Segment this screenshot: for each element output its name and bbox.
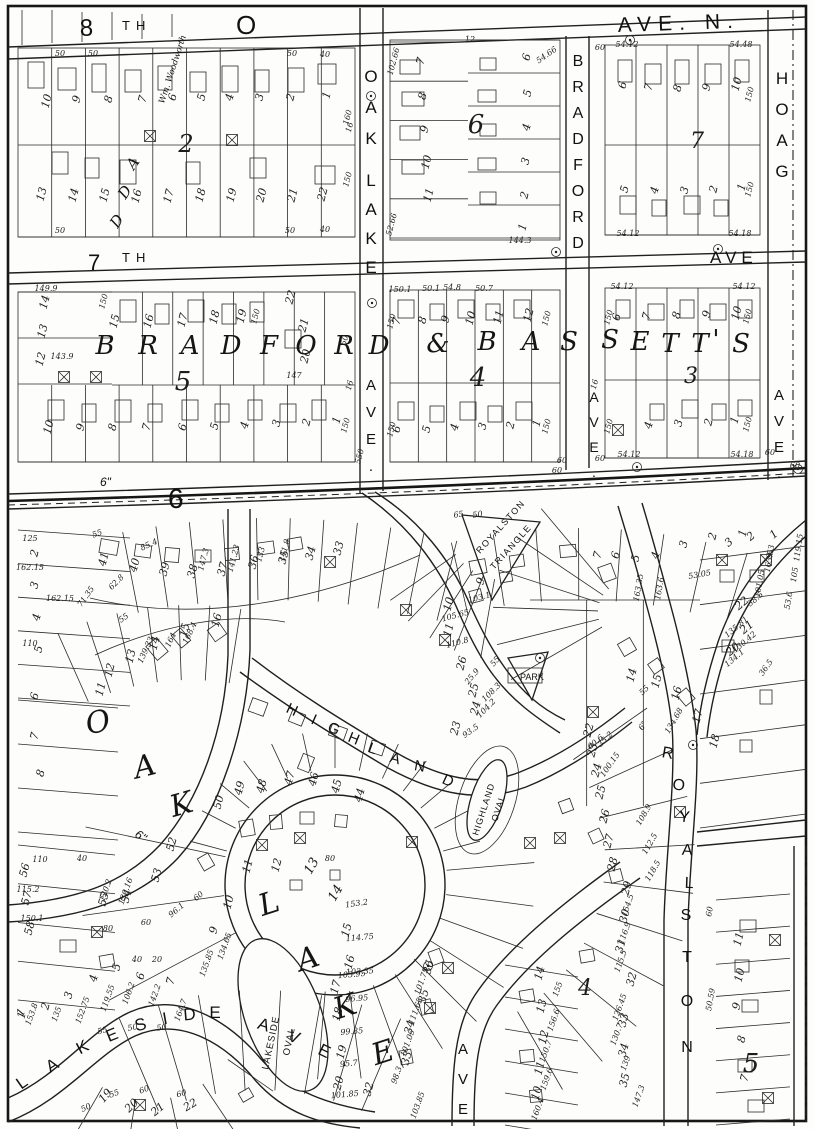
lot-number: 15 xyxy=(97,187,113,204)
bradford-bassetts-letter: F xyxy=(259,331,279,361)
dimension-label: 134.68 xyxy=(663,706,685,735)
label-6in-west: 6" xyxy=(132,827,150,845)
bradford-bassetts-letter: A xyxy=(520,327,541,357)
lakeside-ave-name: L xyxy=(13,1072,32,1093)
lot-line xyxy=(446,895,533,906)
lot-line xyxy=(616,529,621,601)
bradford-bassetts-letter: S xyxy=(601,325,619,355)
lot-number: 10 xyxy=(729,76,745,93)
building-footprint xyxy=(250,158,266,178)
lot-number: 11 xyxy=(421,187,437,204)
dimension-label: 60 xyxy=(595,43,605,52)
lot-number: 11 xyxy=(441,622,457,639)
building-footprint xyxy=(620,196,636,214)
dimension-label: 156.6 xyxy=(546,1008,562,1033)
building-footprint xyxy=(48,400,64,420)
dimension-label: 153.2 xyxy=(345,897,369,909)
dimension-label: 162.15 xyxy=(46,594,74,603)
dimension-label: 142.2 xyxy=(147,983,163,1008)
lot-number: 16 xyxy=(209,612,225,629)
dimension-label: 163.35 xyxy=(632,573,646,602)
lot-number: 10 xyxy=(221,894,237,911)
lot-number: 4 xyxy=(86,973,101,984)
dimension-label: 50 xyxy=(127,1022,139,1033)
oak-lake-name: O xyxy=(364,67,377,86)
street-bradford-ave xyxy=(566,36,589,470)
building-footprint xyxy=(92,64,106,92)
lot-line xyxy=(493,607,598,611)
dimension-label: 53.6 xyxy=(783,591,795,610)
royalston-name: S xyxy=(681,907,692,924)
lot-line xyxy=(443,841,480,851)
dimension-label: 102.66 xyxy=(386,47,402,76)
lot-number: 2 xyxy=(706,184,721,195)
lot-line xyxy=(597,913,683,940)
lot-number: 6 xyxy=(615,80,629,90)
dimension-label: 54.12 xyxy=(617,229,640,238)
street-6th-ave xyxy=(8,461,806,509)
lot-number: 2 xyxy=(705,531,720,542)
building-footprint xyxy=(480,58,496,70)
building-footprint xyxy=(297,753,314,772)
lot-number: 6 xyxy=(27,691,41,701)
lot-line xyxy=(179,605,182,680)
lot-number: 33 xyxy=(331,540,347,557)
street-label-7th-suffix: TH xyxy=(122,250,151,265)
building-footprint xyxy=(148,404,162,422)
building-footprint xyxy=(480,192,496,204)
oak-lake-ave-name: V xyxy=(366,404,376,421)
lot-number: 5 xyxy=(207,421,221,431)
lettered-street-names: OAKLAKEAVE.BRADFORDAVE.HOAGAVE.AVEHIGHLA… xyxy=(13,53,789,1118)
dimension-label: 16 xyxy=(344,121,355,133)
lot-number: 6 xyxy=(175,422,189,432)
dimension-label: 54.66 xyxy=(535,45,559,66)
dimension-label: 55 xyxy=(488,655,501,669)
street-east-cross xyxy=(697,820,806,846)
oak-lake-addition-letter: K xyxy=(165,785,199,826)
dimension-label: 54.48 xyxy=(730,40,753,49)
building-footprint xyxy=(125,70,141,92)
dimension-label: 80 xyxy=(325,854,335,863)
dimension-label: 105 xyxy=(789,566,800,582)
building-footprint xyxy=(290,880,302,890)
dimension-label: 40 xyxy=(76,854,87,863)
lot-line xyxy=(190,841,227,851)
lot-number: 18 xyxy=(193,187,209,204)
lot-number: 10 xyxy=(441,596,457,613)
hoag-ave-name: . xyxy=(777,465,781,482)
building-footprint xyxy=(248,400,262,420)
building-footprint xyxy=(330,870,340,880)
building-footprint xyxy=(430,406,444,422)
lot-number: 14 xyxy=(325,882,346,904)
dimension-label: 52.66 xyxy=(384,212,399,236)
dimension-label: 85.4 xyxy=(139,537,159,553)
dimension-label: 60 xyxy=(790,461,800,470)
building-footprint xyxy=(248,698,268,717)
lot-number: 2 xyxy=(38,1001,53,1012)
dimension-label: 125 xyxy=(22,534,37,543)
lot-line xyxy=(429,940,503,987)
lot-number: 7 xyxy=(139,422,153,432)
bradford-bassetts-letter: S xyxy=(560,327,578,357)
dimension-label: 106.2 xyxy=(121,981,137,1006)
dimension-label: 55 xyxy=(91,528,104,540)
lot-number: 21 xyxy=(284,187,300,205)
lot-line xyxy=(604,882,693,893)
crossed-box-icon xyxy=(613,425,624,436)
lot-number: 3 xyxy=(61,990,75,1000)
dimension-label: 103.1 xyxy=(467,590,491,605)
lot-line xyxy=(700,546,806,560)
building-footprint xyxy=(714,200,728,216)
lot-number: 2 xyxy=(283,92,298,103)
lot-number: 10 xyxy=(41,419,57,436)
lot-line xyxy=(434,811,468,829)
building-footprint xyxy=(682,400,698,418)
bradford-name: R xyxy=(572,209,584,226)
building-footprint xyxy=(720,570,734,582)
lot-number: 8 xyxy=(415,315,429,325)
lot-number: 4 xyxy=(237,420,252,431)
oak-lake-addition-letter: A xyxy=(127,747,159,787)
lot-number: 34 xyxy=(303,545,319,562)
bradford-bassetts-letter: D xyxy=(368,331,390,361)
lot-number: 17 xyxy=(161,188,177,205)
lot-line xyxy=(189,522,198,604)
building-footprint xyxy=(334,814,347,827)
lot-number: 9 xyxy=(699,82,713,92)
dimension-label: 60 xyxy=(557,456,567,465)
dimension-label: 99.85 xyxy=(340,1026,364,1037)
dimension-label: 150 xyxy=(602,309,615,326)
dimension-label: 150.1 xyxy=(21,914,44,923)
building-footprint xyxy=(516,402,532,420)
dimension-label: 53.05 xyxy=(688,568,712,581)
dimension-label: 115.2 xyxy=(17,885,40,894)
dimension-label: 150 xyxy=(385,421,398,438)
crossed-box-icon xyxy=(588,707,599,718)
oak-lake-ave-name: A xyxy=(366,377,376,394)
dimension-label: 50.7 xyxy=(475,284,494,293)
lot-number: 21 xyxy=(147,1100,167,1120)
dimension-label: 50 xyxy=(287,49,297,58)
lot-number: 1 xyxy=(727,415,741,425)
oak-lake-name: K xyxy=(365,229,377,248)
lot-number: 11 xyxy=(240,858,256,875)
lot-number: 9 xyxy=(69,94,83,104)
crossed-box-icon xyxy=(325,557,336,568)
dimension-label: 108.9 xyxy=(634,803,653,827)
dimension-label: 20 xyxy=(151,955,162,964)
lot-number: 16 xyxy=(669,685,685,702)
lot-number: 10 xyxy=(732,967,748,984)
dimension-label: 71.35 xyxy=(76,585,97,609)
building-footprint xyxy=(188,300,204,322)
dimension-label: 152.75 xyxy=(74,995,92,1024)
bradford-bassetts-letter: T xyxy=(691,329,710,359)
lot-number: 7 xyxy=(163,976,177,986)
lot-number: 3 xyxy=(677,185,691,195)
hoag-ave-name: E xyxy=(774,439,784,456)
bradford-bassetts-letter: B xyxy=(94,331,114,361)
lot-line xyxy=(303,734,311,771)
oak-lake-name: E xyxy=(365,258,376,277)
building-footprint xyxy=(650,404,664,420)
lot-line xyxy=(18,788,118,796)
dimension-label: 147 xyxy=(286,371,302,380)
highland-name: A xyxy=(388,749,402,768)
lot-number: 22 xyxy=(180,1096,199,1115)
lot-number: 32 xyxy=(624,971,640,988)
lot-number: 9 xyxy=(417,124,431,134)
dimension-label: 150 xyxy=(741,416,754,433)
bradford-bassetts-letter: A xyxy=(179,331,200,361)
street-label-8th: 8 xyxy=(79,15,93,42)
dimension-label: 54.12 xyxy=(733,282,756,291)
lot-number: 5 xyxy=(617,184,631,194)
dimension-label: 150 xyxy=(97,293,110,310)
lot-number: 56 xyxy=(17,862,33,879)
bradford-bassetts-letter: B xyxy=(476,327,496,357)
lot-number: 3 xyxy=(722,535,736,549)
crossed-box-icon xyxy=(295,833,306,844)
lot-number: 14 xyxy=(37,294,53,311)
lot-number: 35 xyxy=(617,1072,633,1089)
building-footprint xyxy=(60,940,76,952)
dimension-label: 150 xyxy=(385,313,398,330)
dimension-label: 150 xyxy=(602,418,615,435)
dimension-label: 119.15 xyxy=(792,533,805,562)
lot-number: 53 xyxy=(149,867,165,884)
bradford-name: O xyxy=(572,183,584,200)
street-label-7th-ave: AVE xyxy=(710,248,758,267)
lot-number: 16 xyxy=(141,313,157,330)
lot-number: 11 xyxy=(491,309,507,326)
dimension-label: 54.12 xyxy=(616,40,639,49)
lot-number: 19 xyxy=(224,187,240,204)
lot-number: 8 xyxy=(415,91,429,101)
lot-number: 12 xyxy=(102,662,118,679)
lot-number: 9 xyxy=(699,309,713,319)
label-6in-main: 6" xyxy=(100,475,112,489)
building-footprint xyxy=(598,563,617,583)
dimension-label: 111.65 xyxy=(407,996,425,1025)
building-footprint xyxy=(197,853,214,871)
lot-number: 8 xyxy=(669,310,683,320)
bradford-name: F xyxy=(573,157,583,174)
building-footprint xyxy=(82,404,96,422)
lot-line xyxy=(408,533,424,613)
block-number: 4 xyxy=(469,363,487,393)
crossed-box-icon xyxy=(227,135,238,146)
building-footprint xyxy=(652,200,666,216)
street-highland xyxy=(240,658,632,795)
bradford-bassetts-letter: D xyxy=(220,331,242,361)
dimension-label: 150 xyxy=(743,181,756,198)
lot-number: 18 xyxy=(707,733,723,750)
building-footprint xyxy=(238,1088,253,1103)
oak-lake-name: L xyxy=(366,171,375,190)
dimension-label: 150 xyxy=(743,86,756,103)
street-label-top-o: O xyxy=(236,10,256,40)
lot-number: 9 xyxy=(438,314,452,324)
dimension-label: 118.5 xyxy=(643,859,662,883)
lot-number: 20 xyxy=(253,187,269,205)
building-footprint xyxy=(315,166,335,184)
block-number: 5 xyxy=(175,367,192,397)
bradford-bassetts-letter: R xyxy=(137,331,158,361)
bradford-ave-name: E xyxy=(589,439,598,455)
dimension-label: 150.1 xyxy=(389,285,412,294)
dimension-label: 50.59 xyxy=(704,988,717,1012)
monument-markers xyxy=(367,36,803,971)
dimension-label: 60 xyxy=(704,906,715,918)
building-footprint xyxy=(164,547,179,562)
lot-number: 12 xyxy=(33,351,49,368)
dimension-label: 50 xyxy=(55,49,65,58)
crossed-box-icon xyxy=(443,963,454,974)
lot-number: 20 xyxy=(121,1096,141,1116)
lot-number: 2 xyxy=(743,529,757,544)
lot-number: 4 xyxy=(447,422,462,433)
street-label-7th: 7 xyxy=(88,250,100,275)
lot-number: 3 xyxy=(269,418,283,428)
block-number: 6 xyxy=(468,110,485,140)
hoag-name: O xyxy=(775,100,788,119)
building-footprint xyxy=(400,126,420,140)
bradford-name: D xyxy=(572,131,584,148)
monument-icon xyxy=(368,299,377,308)
hoag-name: H xyxy=(776,69,788,88)
block-number: 4 xyxy=(577,976,592,1001)
lot-number: 3 xyxy=(518,156,532,166)
dimension-label: 54.12 xyxy=(611,282,634,291)
crossed-box-icon xyxy=(401,605,412,616)
lot-line xyxy=(18,631,130,639)
dimension-label: 65 xyxy=(453,509,465,520)
lot-line xyxy=(716,894,790,900)
block-number: 5 xyxy=(743,1049,760,1079)
building-footprint xyxy=(560,544,577,557)
lot-number: 26 xyxy=(453,655,469,673)
oak-lake-name: K xyxy=(365,129,377,148)
lot-number: 47 xyxy=(281,770,297,788)
lot-number: 7 xyxy=(135,94,149,104)
dimension-label: 133 xyxy=(254,546,267,563)
oak-lake-name: A xyxy=(365,200,377,219)
lot-number: 4 xyxy=(647,185,662,196)
building-footprint xyxy=(28,62,44,88)
building-footprint xyxy=(742,1000,758,1012)
lot-number: 2 xyxy=(701,417,716,428)
lot-number: 4 xyxy=(519,122,534,133)
crossed-box-icon xyxy=(525,838,536,849)
building-footprint xyxy=(579,949,595,963)
lot-number: 13 xyxy=(35,323,51,340)
lot-number: 3 xyxy=(27,580,41,590)
lot-number: 3 xyxy=(252,92,266,102)
lot-line xyxy=(497,619,599,644)
dimension-label: 147.3 xyxy=(196,547,211,571)
lot-number: 9 xyxy=(206,925,220,935)
bradford-bassetts-letter: E xyxy=(630,327,650,357)
monument-icon xyxy=(552,248,561,257)
street-right-edge-south xyxy=(794,846,806,1126)
lot-number: 3 xyxy=(475,421,489,431)
lot-number: 13 xyxy=(534,998,550,1015)
block-number: 3 xyxy=(684,364,698,389)
lot-line xyxy=(716,926,790,932)
bradford-ave-name: V xyxy=(589,414,599,430)
lot-number: 4 xyxy=(641,420,656,431)
building-footprint xyxy=(312,400,326,420)
lot-number: 27 xyxy=(600,833,616,851)
dimension-label: 50 xyxy=(88,49,98,58)
bradford-name: D xyxy=(572,235,584,252)
dimension-label: 96.95 xyxy=(345,993,369,1004)
dimension-label: 114.75 xyxy=(345,932,374,943)
highland-name: H xyxy=(345,729,361,749)
lot-line xyxy=(700,769,806,783)
bradford-bassetts-letter: & xyxy=(426,329,449,359)
dimension-label: 96.1 xyxy=(167,901,186,919)
lot-number: 12 xyxy=(269,857,285,874)
lot-number: 19 xyxy=(234,308,250,325)
building-footprint xyxy=(120,300,136,322)
building-footprint xyxy=(738,400,752,416)
bradford-bassetts-letter: S xyxy=(732,329,750,359)
dimension-label: 50 xyxy=(285,226,295,235)
dimension-label: 40 xyxy=(319,50,330,59)
lot-number: 13 xyxy=(301,855,322,877)
building-footprint xyxy=(460,402,476,420)
building-footprint xyxy=(617,637,636,656)
dimension-label: 150 xyxy=(540,310,553,327)
building-footprint xyxy=(488,406,502,422)
bradford-name: B xyxy=(573,53,584,70)
dimension-label: 103.85 xyxy=(409,1090,427,1119)
lot-line xyxy=(716,1087,790,1093)
lot-number: 1 xyxy=(767,527,781,541)
dimension-label: 60 xyxy=(595,454,605,463)
highland-name: L xyxy=(366,739,380,758)
dimension-label: 62.8 xyxy=(107,573,126,592)
dimension-label: 153.8 xyxy=(24,1002,40,1027)
lot-line xyxy=(536,530,542,602)
lakeside-oval-island xyxy=(220,927,346,1103)
lot-number: 13 xyxy=(34,186,50,203)
lot-number: 11 xyxy=(93,681,109,698)
lot-number: 17 xyxy=(690,708,706,725)
dimension-label: 162.15 xyxy=(16,563,44,572)
lot-line xyxy=(505,1125,578,1129)
lot-number: 7 xyxy=(413,56,427,66)
crossed-box-icon xyxy=(763,1093,774,1104)
add-letter: A xyxy=(121,153,143,174)
dimension-label: 60 xyxy=(138,1084,151,1096)
lot-number: 26 xyxy=(596,808,612,826)
building-footprint xyxy=(478,90,496,102)
lot-line xyxy=(229,609,241,683)
building-footprint xyxy=(712,404,726,420)
lot-number: 7 xyxy=(641,82,655,92)
building-footprint xyxy=(52,152,68,174)
oak-lake-ave-name: E xyxy=(366,431,376,448)
lot-line xyxy=(18,832,118,840)
crossed-box-icon xyxy=(555,833,566,844)
